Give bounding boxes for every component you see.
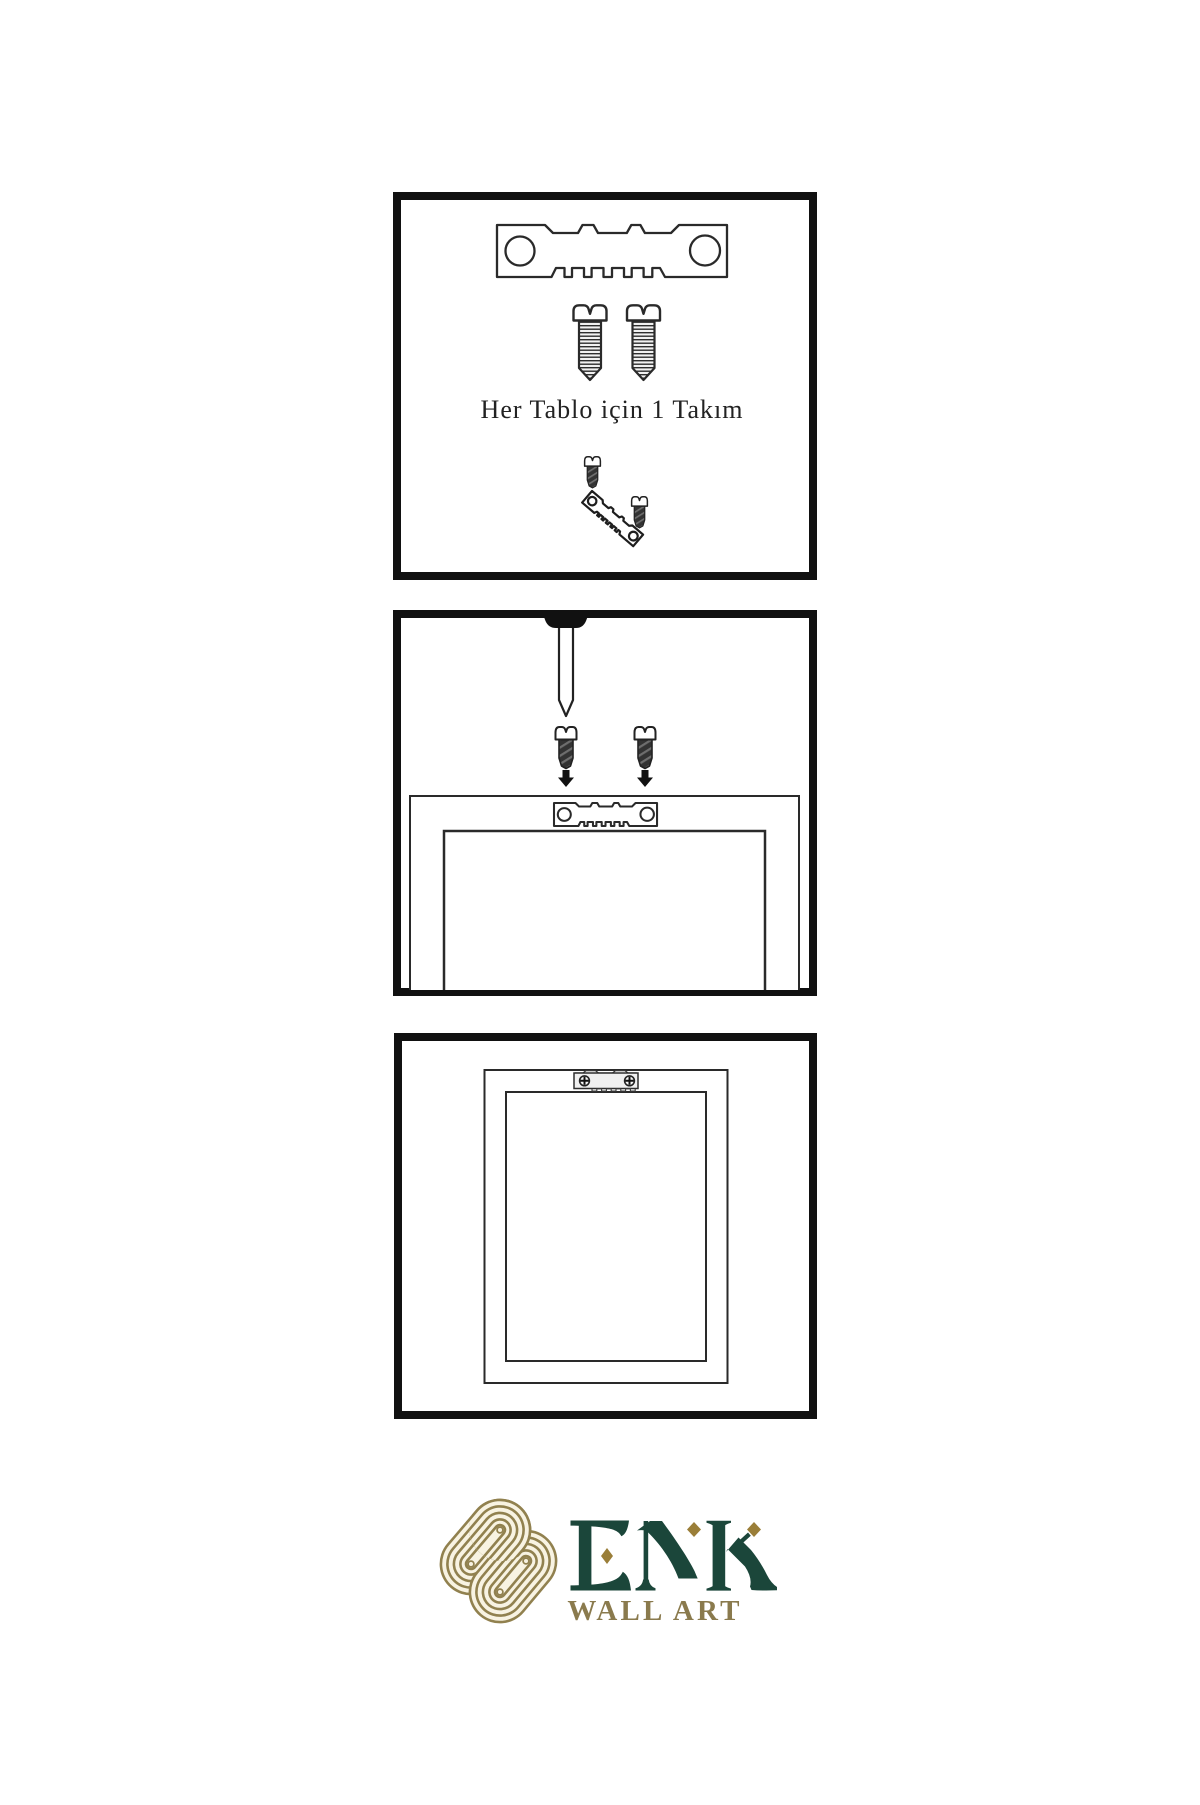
svg-text:WALL ART: WALL ART (567, 1595, 742, 1627)
svg-text:Her Tablo için 1 Takım: Her Tablo için 1 Takım (481, 395, 744, 424)
